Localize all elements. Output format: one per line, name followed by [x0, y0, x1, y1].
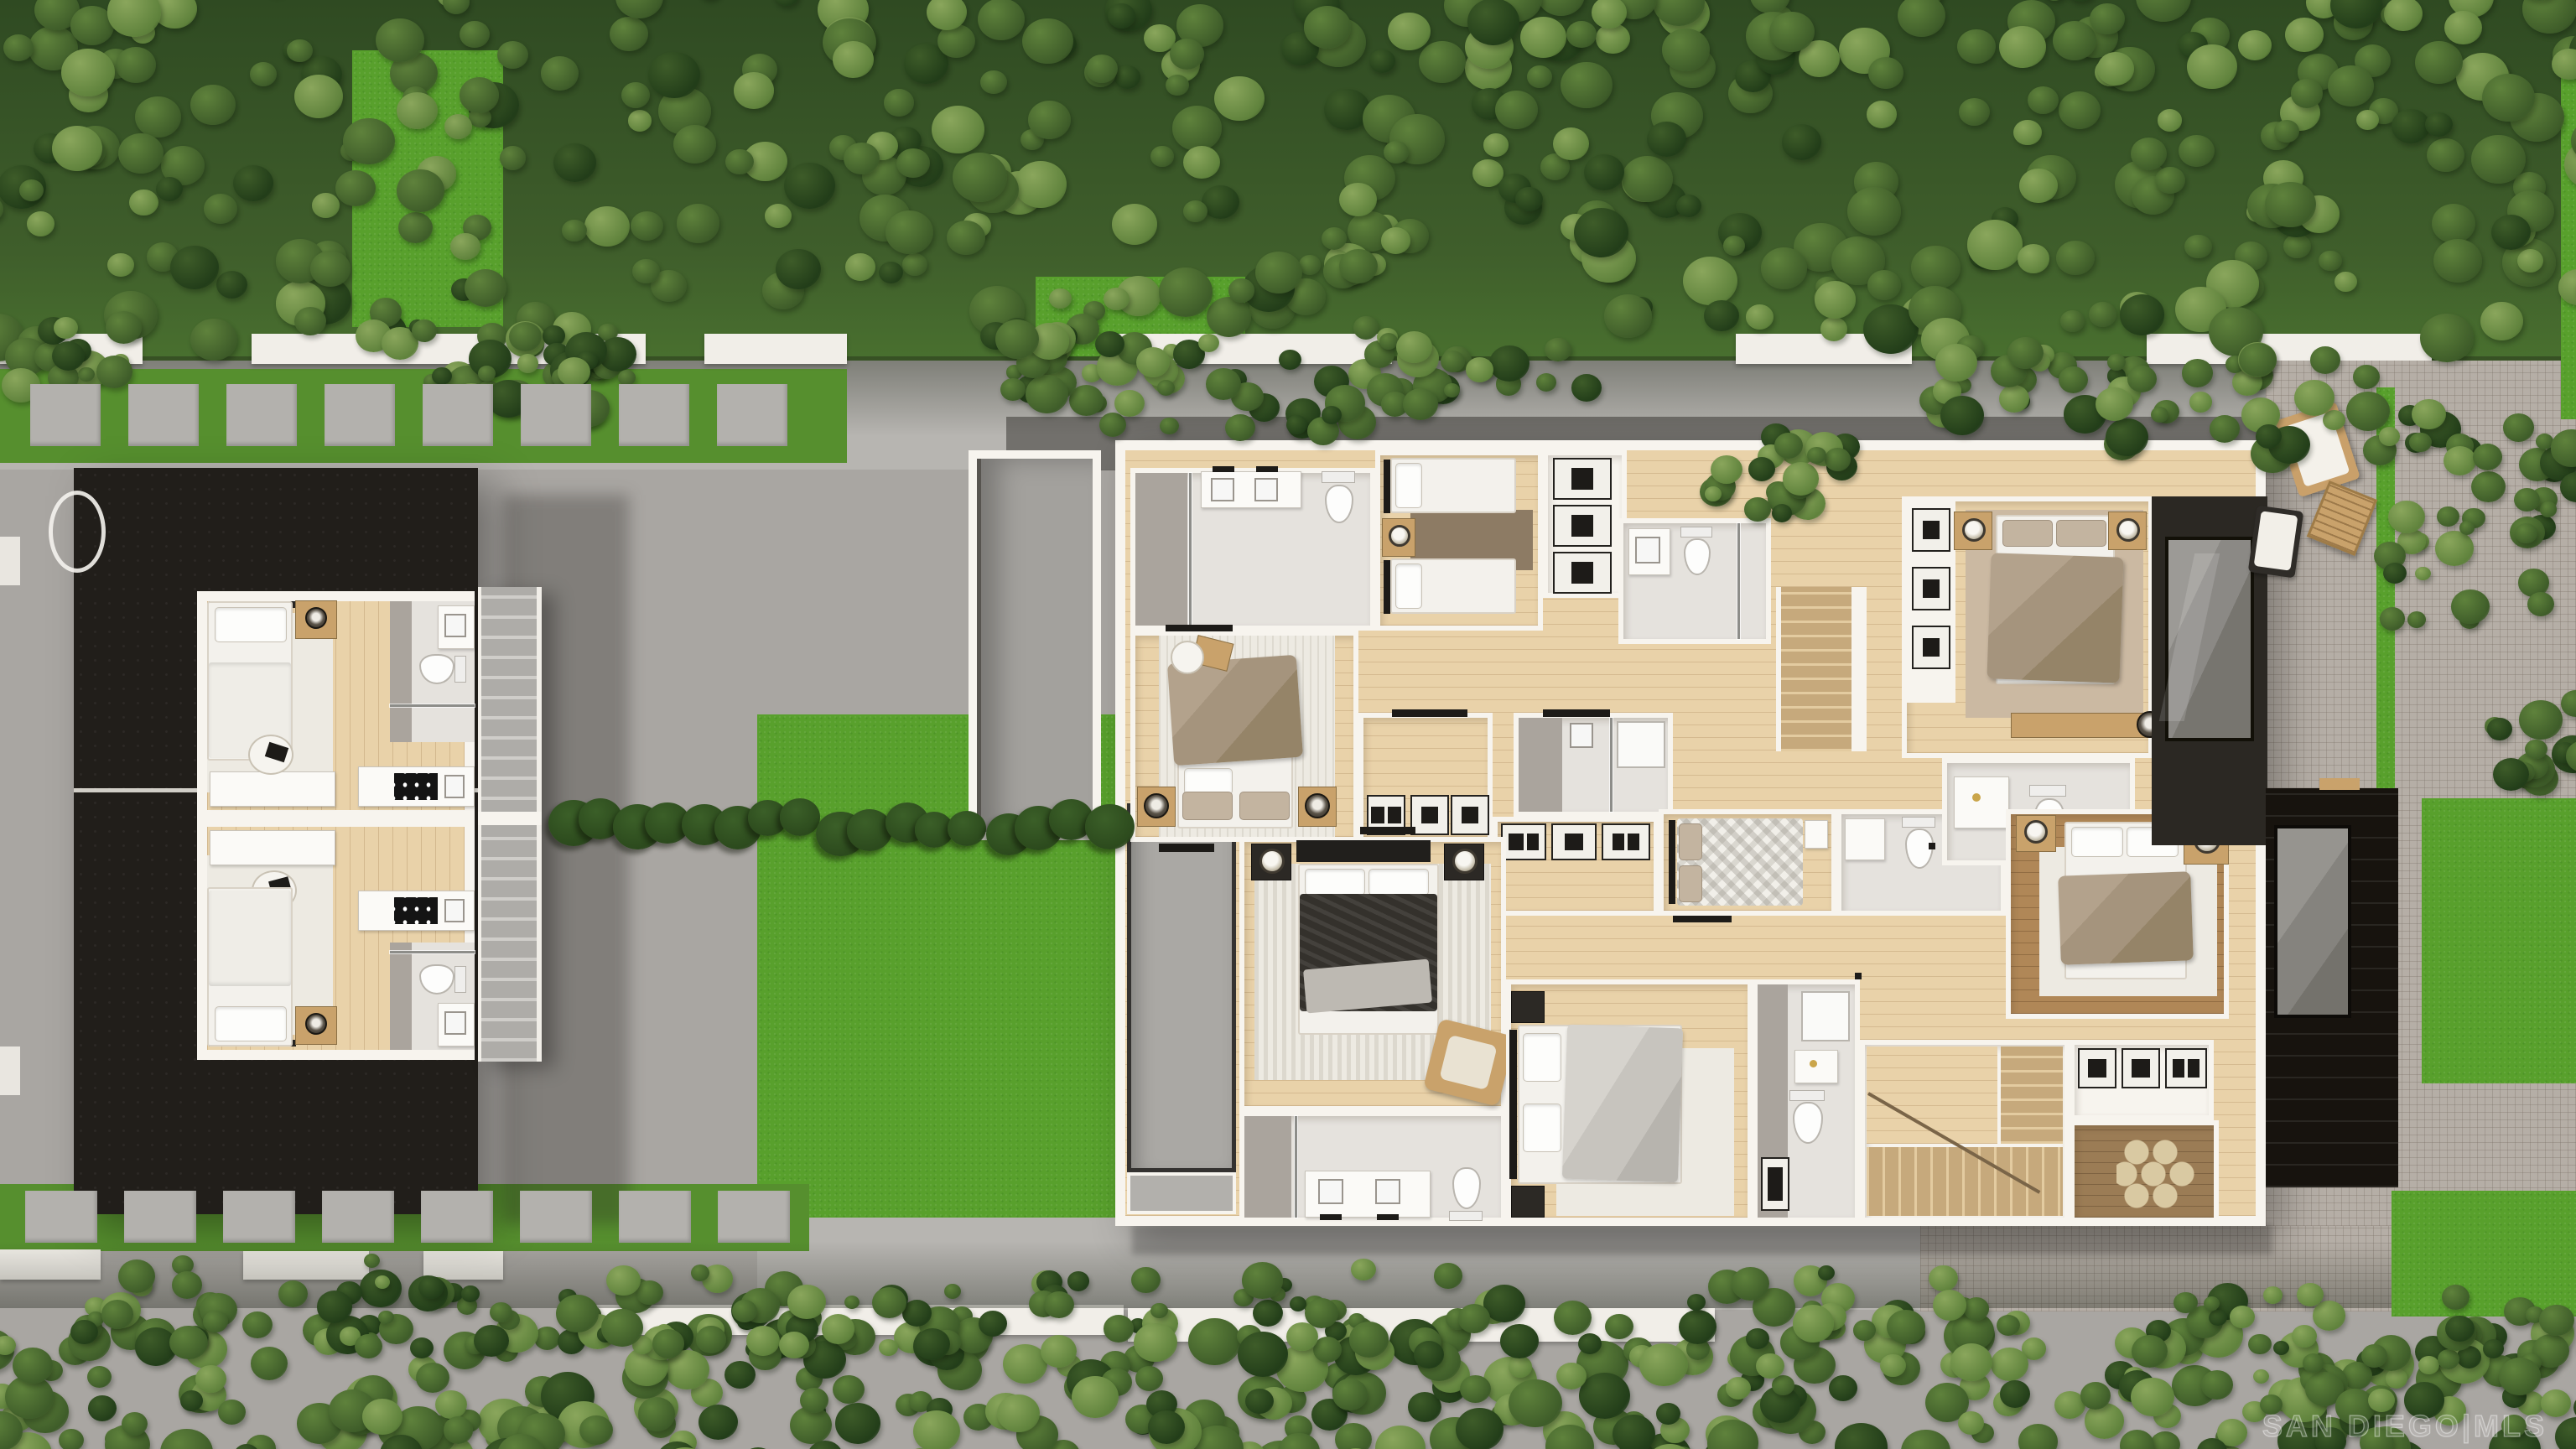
- tree-foliage: [800, 1388, 828, 1413]
- tree-foliage: [1835, 1423, 1888, 1449]
- tree-foliage: [398, 212, 433, 243]
- tree-foliage: [376, 18, 423, 62]
- tree-foliage: [2204, 1296, 2220, 1311]
- tree-foliage: [1815, 281, 1857, 319]
- tree-foliage: [902, 253, 927, 276]
- tree-foliage: [1202, 185, 1239, 219]
- tree-foliage: [1783, 462, 1820, 495]
- tree-foliage: [2056, 241, 2095, 275]
- tree-foliage: [2525, 740, 2547, 760]
- tree-foliage: [52, 126, 102, 171]
- tree-foliage: [1159, 267, 1213, 316]
- stepping-paver: [520, 1191, 592, 1243]
- tree-foliage: [2328, 65, 2374, 106]
- tree-foliage: [70, 1320, 98, 1345]
- tree-foliage: [732, 1300, 757, 1322]
- tree-foliage: [696, 1326, 726, 1353]
- tree-foliage: [2297, 1283, 2323, 1306]
- tree-foliage: [203, 1311, 228, 1333]
- tree-foliage: [845, 253, 875, 280]
- tree-foliage: [648, 52, 699, 98]
- tree-foliage: [835, 1403, 880, 1444]
- tree-foliage: [2409, 433, 2432, 453]
- tree-foliage: [1929, 1265, 1958, 1292]
- tree-foliage: [833, 1375, 865, 1404]
- tree-foliage: [1381, 227, 1410, 253]
- tree-foliage: [118, 1259, 155, 1293]
- tree-foliage: [776, 249, 821, 290]
- tree-foliage: [673, 125, 716, 164]
- tree-foliage: [2182, 359, 2213, 387]
- tree-foliage: [1172, 106, 1222, 150]
- tree-foliage: [1553, 127, 1589, 160]
- tree-foliage: [2425, 112, 2453, 137]
- tree-foliage: [2028, 86, 2059, 114]
- tree-foliage: [2323, 410, 2345, 430]
- tree-foliage: [2380, 607, 2406, 631]
- tree-foliage: [1647, 122, 1686, 157]
- tree-foliage: [631, 211, 663, 241]
- tree-foliage: [355, 1334, 382, 1358]
- tree-foliage: [2151, 407, 2168, 423]
- tree-foliage: [2256, 424, 2283, 448]
- tree-foliage: [579, 1415, 613, 1446]
- tree-foliage: [2120, 294, 2165, 335]
- tree-foliage: [1935, 344, 1977, 382]
- tree-foliage: [1958, 1411, 1984, 1435]
- tree-foliage: [997, 1394, 1039, 1432]
- tree-foliage: [444, 1416, 474, 1443]
- tree-foliage: [294, 75, 343, 118]
- tree-foliage: [1026, 375, 1069, 413]
- tree-foliage: [2265, 182, 2316, 228]
- tree-foliage: [1622, 156, 1673, 202]
- tree-foliage: [844, 1296, 860, 1309]
- tree-foliage: [1022, 18, 1073, 65]
- tree-foliage: [1067, 1271, 1089, 1291]
- tree-foliage: [490, 1302, 512, 1322]
- stepping-paver: [325, 384, 395, 446]
- tree-foliage: [2096, 387, 2133, 421]
- tree-foliage: [169, 1326, 207, 1360]
- tree-foliage: [19, 179, 44, 201]
- tree-foliage: [1351, 1259, 1375, 1281]
- tree-foliage: [1349, 1322, 1389, 1358]
- tree-foliage: [2480, 302, 2524, 340]
- tree-foliage: [2499, 1358, 2541, 1395]
- tree-foliage: [1460, 1375, 1491, 1403]
- tree-foliage: [885, 210, 933, 254]
- tree-foliage: [2319, 251, 2341, 272]
- tree-foliage: [218, 1400, 246, 1425]
- tree-foliage: [2515, 523, 2537, 543]
- tree-foliage: [2517, 249, 2543, 273]
- tree-foliage: [1746, 1328, 1768, 1349]
- tree-foliage: [2407, 611, 2426, 628]
- tree-foliage: [251, 1347, 288, 1380]
- tree-foliage: [1726, 1377, 1751, 1400]
- tree-foliage: [1656, 1403, 1680, 1425]
- stepping-paver: [619, 1191, 691, 1243]
- tree-foliage: [932, 106, 985, 153]
- tree-foliage: [156, 177, 183, 201]
- tree-foliage: [1520, 17, 1566, 58]
- tree-foliage: [1183, 200, 1207, 222]
- tree-foliage: [2451, 589, 2490, 624]
- tree-foliage: [242, 1311, 273, 1338]
- tree-foliage: [1369, 49, 1395, 73]
- tree-foliage: [500, 146, 527, 170]
- tree-foliage: [410, 1337, 434, 1358]
- tree-foliage: [2437, 506, 2459, 527]
- stepping-paver: [124, 1191, 196, 1243]
- tree-foliage: [1353, 316, 1379, 339]
- tree-foliage: [1444, 383, 1460, 397]
- tree-foliage: [1772, 1375, 1794, 1395]
- tree-foliage: [1704, 300, 1739, 332]
- tree-foliage: [1253, 1300, 1283, 1327]
- tree-foliage: [1419, 41, 1466, 83]
- tree-foliage: [1711, 455, 1742, 484]
- tree-foliage: [2059, 366, 2088, 393]
- tree-foliage: [1732, 1267, 1768, 1301]
- tree-foliage: [2346, 392, 2390, 431]
- tree-foliage: [1086, 55, 1118, 83]
- tree-foliage: [1028, 101, 1071, 139]
- tree-foliage: [1414, 1341, 1444, 1368]
- tree-foliage: [2120, 1430, 2154, 1449]
- tree-foliage: [2334, 272, 2357, 292]
- tree-foliage: [135, 96, 181, 138]
- tree-foliage: [2007, 337, 2043, 369]
- tree-foliage: [2131, 1378, 2174, 1417]
- tree-foliage: [2150, 1431, 2180, 1449]
- tree-foliage: [978, 0, 1025, 40]
- stepping-paver: [619, 384, 689, 446]
- tree-foliage: [621, 82, 650, 108]
- tree-foliage: [444, 114, 473, 139]
- watermark: SAN DIEGO|MLS: [2262, 1409, 2547, 1444]
- tree-foliage: [190, 319, 237, 361]
- tree-foliage: [980, 70, 1006, 94]
- tree-foliage: [2018, 244, 2050, 273]
- tree-foliage: [129, 190, 158, 216]
- tree-foliage: [2189, 392, 2212, 412]
- tree-foliage: [1748, 457, 1775, 481]
- tree-foliage: [1255, 252, 1302, 293]
- tree-foliage: [2552, 49, 2576, 80]
- tree-foliage: [1225, 414, 1255, 441]
- tree-foliage: [2158, 109, 2182, 131]
- tree-foliage: [1545, 338, 1571, 362]
- tree-foliage: [1114, 65, 1141, 90]
- tree-foliage: [1500, 1324, 1539, 1358]
- tree-foliage: [54, 317, 78, 339]
- tree-foliage: [107, 253, 134, 278]
- tree-foliage: [2514, 488, 2540, 512]
- tree-foliage: [610, 17, 648, 51]
- tree-foliage: [1867, 101, 1897, 128]
- stepping-paver: [128, 384, 199, 446]
- tree-foliage: [1183, 146, 1219, 179]
- tree-foliage: [2155, 167, 2185, 194]
- tree-foliage: [1868, 57, 1903, 88]
- tree-foliage: [397, 169, 444, 212]
- tree-foliage: [204, 194, 238, 224]
- hedge-bush: [780, 798, 820, 835]
- stepping-paver: [423, 384, 493, 446]
- tree-foliage: [1458, 1304, 1491, 1333]
- tree-foliage: [1072, 1376, 1119, 1418]
- tree-foliage: [1679, 1310, 1716, 1344]
- tree-foliage: [1769, 12, 1815, 52]
- tree-foliage: [1662, 29, 1709, 71]
- tree-foliage: [913, 1410, 961, 1449]
- tree-foliage: [2561, 690, 2576, 717]
- tree-foliage: [106, 311, 142, 344]
- tree-foliage: [1772, 504, 1792, 522]
- tree-foliage: [1556, 1363, 1587, 1389]
- tree-foliage: [101, 1300, 133, 1329]
- tree-foliage: [2558, 269, 2576, 305]
- tree-foliage: [2383, 563, 2407, 584]
- tree-foliage: [1188, 1318, 1241, 1366]
- tree-foliage: [1820, 317, 1847, 341]
- tree-foliage: [294, 307, 326, 335]
- tree-foliage: [1847, 187, 1901, 236]
- tree-foliage: [1554, 1301, 1592, 1335]
- tree-foliage: [1999, 385, 2029, 413]
- tree-foliage: [312, 193, 340, 217]
- tree-foliage: [2388, 501, 2425, 534]
- tree-foliage: [1379, 333, 1398, 350]
- tree-foliage: [317, 1291, 353, 1322]
- tree-foliage: [2313, 1301, 2346, 1331]
- tree-foliage: [1761, 247, 1807, 288]
- stepping-paver: [421, 1191, 493, 1243]
- tree-foliage: [2519, 700, 2563, 739]
- tree-foliage: [699, 1405, 738, 1440]
- tree-foliage: [2106, 418, 2148, 456]
- tree-foliage: [2019, 169, 2058, 203]
- tree-foliage: [1339, 183, 1376, 216]
- tree-foliage: [734, 72, 775, 109]
- tree-foliage: [2444, 446, 2477, 476]
- tree-foliage: [1245, 1389, 1274, 1415]
- tree-foliage: [233, 165, 273, 201]
- tree-foliage: [1279, 350, 1301, 370]
- tree-foliage: [1898, 0, 1946, 37]
- tree-foliage: [1441, 351, 1465, 372]
- tree-foliage: [1148, 1410, 1185, 1443]
- tree-foliage: [1964, 1297, 1990, 1321]
- tree-foliage: [2438, 1349, 2459, 1368]
- tree-foliage: [1495, 91, 1538, 129]
- tree-foliage: [765, 204, 792, 228]
- tree-foliage: [2018, 1424, 2058, 1449]
- tree-foliage: [2253, 1369, 2269, 1384]
- tree-foliage: [2059, 91, 2101, 129]
- tree-foliage: [118, 133, 164, 174]
- tree-foliage: [160, 1429, 213, 1449]
- tree-foliage: [1150, 1303, 1168, 1319]
- tree-foliage: [195, 1365, 226, 1393]
- tree-foliage: [122, 1412, 148, 1436]
- tree-foliage: [2000, 1380, 2030, 1407]
- tree-foliage: [2356, 110, 2379, 130]
- tree-foliage: [52, 341, 85, 371]
- tree-foliage: [1566, 21, 1597, 48]
- tree-foliage: [1571, 374, 1602, 402]
- tree-foliage: [2187, 44, 2236, 89]
- tree-foliage: [1150, 146, 1173, 167]
- tree-foliage: [1613, 1415, 1655, 1449]
- tree-foliage: [1000, 378, 1026, 401]
- tree-foliage: [1997, 1315, 2020, 1336]
- tree-foliage: [443, 0, 470, 14]
- stepping-paver: [25, 1191, 97, 1243]
- tree-foliage: [116, 47, 156, 83]
- tree-foliage: [1807, 447, 1826, 464]
- tree-foliage: [1959, 98, 1990, 126]
- tree-foliage: [412, 319, 437, 342]
- tree-foliage: [1793, 1305, 1835, 1343]
- tree-foliage: [2239, 343, 2277, 377]
- tree-foliage: [397, 92, 438, 129]
- landscaping-layer: [0, 0, 2576, 1449]
- tree-foliage: [2136, 0, 2191, 22]
- tree-foliage: [1489, 345, 1529, 382]
- tree-foliage: [1527, 65, 1552, 88]
- tree-foliage: [1561, 62, 1613, 108]
- tree-foliage: [1135, 1366, 1163, 1391]
- tree-foliage: [497, 41, 528, 69]
- tree-foliage: [1104, 288, 1130, 310]
- tree-foliage: [632, 259, 660, 283]
- tree-foliage: [2471, 471, 2506, 502]
- tree-foliage: [2353, 365, 2380, 389]
- tree-foliage: [59, 1429, 84, 1449]
- tree-foliage: [2248, 1334, 2271, 1355]
- tree-foliage: [1940, 396, 1984, 435]
- tree-foliage: [2184, 235, 2211, 259]
- stepping-paver: [223, 1191, 295, 1243]
- tree-foliage: [416, 1363, 449, 1393]
- stepping-paver: [717, 384, 787, 446]
- tree-foliage: [2292, 1325, 2317, 1348]
- tree-foliage: [615, 0, 663, 18]
- tree-foliage: [2420, 314, 2475, 362]
- tree-foliage: [1108, 3, 1135, 29]
- tree-foliage: [1160, 418, 1179, 435]
- tree-foliage: [1933, 1290, 1966, 1320]
- stepping-paver: [521, 384, 591, 446]
- tree-foliage: [1290, 1296, 1306, 1311]
- tree-foliage: [1134, 1323, 1176, 1362]
- tree-foliage: [180, 1390, 203, 1411]
- tree-foliage: [1466, 357, 1493, 382]
- tree-foliage: [435, 1390, 467, 1419]
- tree-foliage: [2471, 135, 2525, 184]
- tree-foliage: [2483, 1339, 2504, 1358]
- tree-foliage: [1683, 257, 1737, 305]
- tree-foliage: [1049, 288, 1071, 309]
- tree-foliage: [562, 220, 586, 241]
- tree-foliage: [2080, 1382, 2111, 1410]
- tree-foliage: [78, 367, 94, 382]
- tree-foliage: [2201, 1370, 2233, 1400]
- tree-foliage: [1639, 1343, 1687, 1387]
- tree-foliage: [1332, 1379, 1368, 1410]
- tree-foliage: [1483, 133, 1509, 156]
- tree-foliage: [1403, 388, 1439, 420]
- tree-foliage: [1853, 1320, 1877, 1341]
- tree-foliage: [378, 1311, 394, 1325]
- tree-foliage: [1114, 390, 1145, 417]
- tree-foliage: [556, 1295, 599, 1332]
- tree-foliage: [1095, 331, 1124, 357]
- tree-foliage: [1967, 220, 2023, 269]
- tree-foliage: [833, 41, 874, 78]
- tree-foliage: [1456, 1408, 1503, 1449]
- tree-foliage: [2283, 234, 2311, 258]
- tree-foliage: [450, 233, 480, 260]
- tree-foliage: [1957, 29, 1996, 64]
- tree-foliage: [170, 246, 219, 289]
- tree-foliage: [2043, 0, 2066, 1]
- tree-foliage: [343, 118, 395, 165]
- tree-foliage: [2285, 18, 2324, 53]
- tree-foliage: [1825, 448, 1851, 471]
- tree-foliage: [606, 1265, 641, 1296]
- tree-foliage: [2209, 1310, 2227, 1327]
- tree-foliage: [2540, 501, 2557, 517]
- tree-foliage: [1604, 294, 1652, 338]
- tree-foliage: [879, 262, 903, 283]
- aerial-floor-plan-render: SAN DIEGO|MLS: [0, 0, 2576, 1449]
- tree-foliage: [2291, 79, 2323, 107]
- tree-foliage: [2435, 531, 2475, 566]
- tree-foliage: [652, 1329, 684, 1358]
- tree-foliage: [2089, 302, 2116, 327]
- tree-foliage: [460, 77, 500, 113]
- tree-foliage: [2090, 3, 2125, 35]
- tree-foliage: [1782, 124, 1821, 159]
- tree-foliage: [2459, 521, 2475, 535]
- tree-foliage: [461, 1285, 480, 1302]
- tree-foliage: [1991, 1348, 2028, 1382]
- tree-foliage: [844, 143, 880, 175]
- tree-foliage: [2539, 1305, 2574, 1337]
- tree-foliage: [2294, 380, 2334, 416]
- tree-foliage: [2066, 0, 2096, 2]
- tree-foliage: [1537, 0, 1585, 16]
- stepping-paver: [718, 1191, 790, 1243]
- tree-foliage: [250, 62, 277, 86]
- tree-foliage: [1339, 249, 1378, 283]
- tree-foliage: [1278, 1433, 1320, 1449]
- tree-foliage: [1304, 6, 1351, 48]
- tree-foliage: [460, 21, 489, 48]
- tree-foliage: [1041, 1335, 1077, 1368]
- tree-foliage: [1746, 304, 1774, 330]
- tree-foliage: [2555, 1417, 2576, 1449]
- tree-foliage: [509, 322, 542, 351]
- tree-foliage: [2263, 1286, 2283, 1304]
- tree-foliage: [2274, 120, 2299, 143]
- tree-foliage: [1299, 255, 1322, 275]
- tree-foliage: [517, 354, 538, 372]
